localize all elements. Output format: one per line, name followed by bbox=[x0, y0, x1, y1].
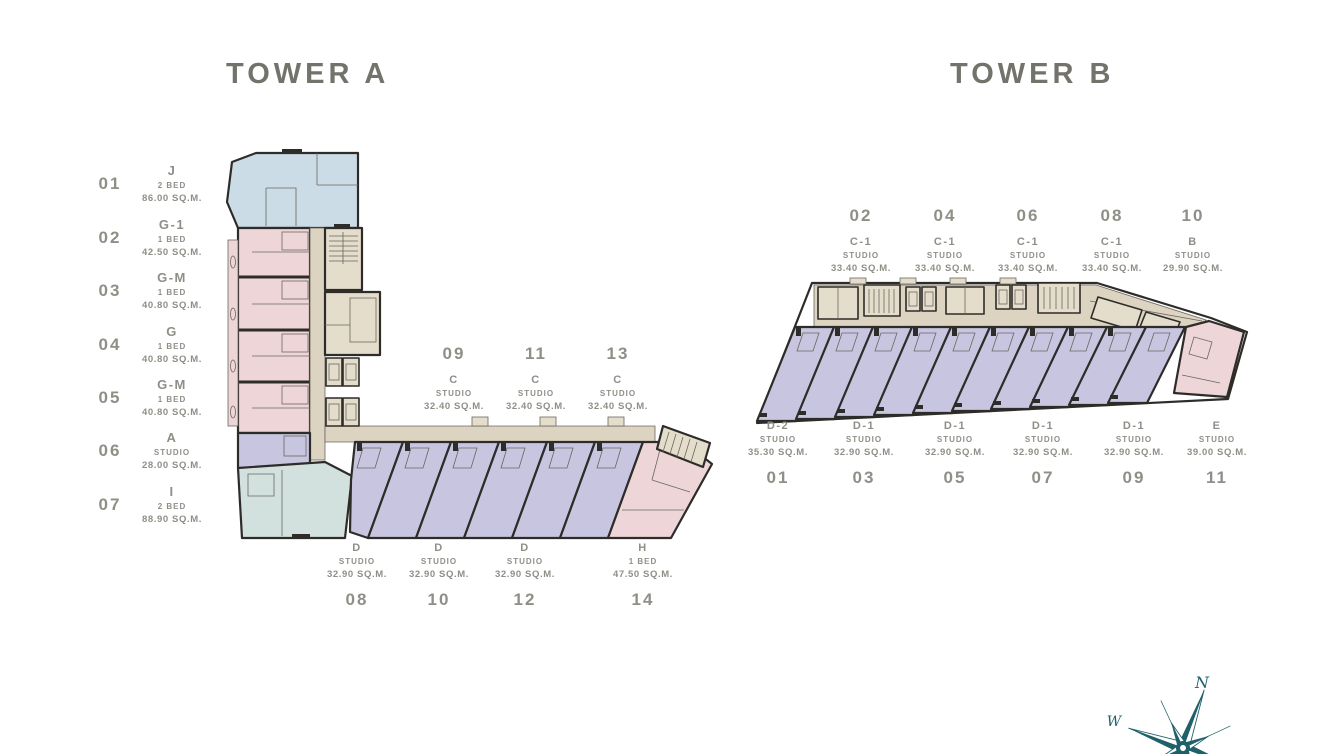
unit-type: G bbox=[132, 324, 212, 339]
unit-label-a-14: H 1 BED 47.50 SQ.M. 14 bbox=[588, 542, 698, 610]
unit-label-a-03: 03 G-M1 BED40.80 SQ.M. bbox=[88, 270, 212, 311]
unit-number: 03 bbox=[88, 281, 132, 301]
unit-type: G-M bbox=[132, 270, 212, 285]
unit-area: 42.50 SQ.M. bbox=[132, 247, 212, 258]
unit-label-a-13: 13 C STUDIO 32.40 SQ.M. bbox=[563, 344, 673, 412]
unit-type: E bbox=[1162, 420, 1272, 432]
unit-bed: 1 BED bbox=[132, 342, 212, 351]
tower-a-pink-units-shape bbox=[228, 228, 310, 433]
unit-type: G-1 bbox=[132, 217, 212, 232]
unit-number: 12 bbox=[470, 590, 580, 610]
unit-number: 02 bbox=[88, 228, 132, 248]
tower-b-floorplan bbox=[750, 275, 1260, 435]
tower-b-title: TOWER B bbox=[950, 58, 1114, 91]
unit-type: C bbox=[563, 374, 673, 386]
unit-type: D bbox=[470, 542, 580, 554]
unit-bed: STUDIO bbox=[1138, 251, 1248, 260]
compass-rose bbox=[1113, 670, 1256, 754]
compass-west-label: W bbox=[1107, 714, 1123, 730]
unit-area: 40.80 SQ.M. bbox=[132, 354, 212, 365]
unit-label-b-11: E STUDIO 39.00 SQ.M. 11 bbox=[1162, 420, 1272, 488]
unit-number: 13 bbox=[563, 344, 673, 364]
unit-type: H bbox=[588, 542, 698, 554]
unit-type: A bbox=[132, 430, 212, 445]
unit-label-a-02: 02 G-11 BED42.50 SQ.M. bbox=[88, 217, 212, 258]
unit-type: I bbox=[132, 484, 212, 499]
tower-a-d-units-shape bbox=[350, 442, 643, 538]
unit-label-a-01: 01 J2 BED86.00 SQ.M. bbox=[88, 163, 212, 204]
unit-area: 40.80 SQ.M. bbox=[132, 300, 212, 311]
unit-area: 86.00 SQ.M. bbox=[132, 193, 212, 204]
unit-label-a-07: 07 I2 BED88.90 SQ.M. bbox=[88, 484, 212, 525]
tower-a-unit-j-shape bbox=[227, 149, 358, 228]
unit-number: 05 bbox=[88, 388, 132, 408]
tower-a-title: TOWER A bbox=[226, 58, 389, 91]
unit-number: 04 bbox=[88, 335, 132, 355]
unit-label-b-10: 10 B STUDIO 29.90 SQ.M. bbox=[1138, 206, 1248, 274]
unit-number: 11 bbox=[1162, 468, 1272, 488]
unit-label-a-05: 05 G-M1 BED40.80 SQ.M. bbox=[88, 377, 212, 418]
unit-area: 32.40 SQ.M. bbox=[563, 401, 673, 412]
floorplan-page: TOWER A TOWER B bbox=[0, 0, 1342, 754]
unit-number: 07 bbox=[88, 495, 132, 515]
unit-area: 40.80 SQ.M. bbox=[132, 407, 212, 418]
unit-area: 39.00 SQ.M. bbox=[1162, 447, 1272, 458]
unit-bed: 2 BED bbox=[132, 181, 212, 190]
unit-number: 10 bbox=[1138, 206, 1248, 226]
tower-b-units-shape bbox=[757, 327, 1185, 421]
compass-north-label: N bbox=[1194, 673, 1210, 692]
unit-bed: 1 BED bbox=[132, 235, 212, 244]
unit-area: 88.90 SQ.M. bbox=[132, 514, 212, 525]
unit-bed: 1 BED bbox=[132, 395, 212, 404]
unit-bed: STUDIO bbox=[1162, 435, 1272, 444]
compass-icon: N W bbox=[1098, 662, 1268, 754]
unit-area: 28.00 SQ.M. bbox=[132, 460, 212, 471]
unit-number: 14 bbox=[588, 590, 698, 610]
unit-type: J bbox=[132, 163, 212, 178]
unit-bed: STUDIO bbox=[470, 557, 580, 566]
unit-area: 47.50 SQ.M. bbox=[588, 569, 698, 580]
unit-label-a-12: D STUDIO 32.90 SQ.M. 12 bbox=[470, 542, 580, 610]
unit-type: B bbox=[1138, 236, 1248, 248]
unit-number: 01 bbox=[88, 174, 132, 194]
unit-bed: 2 BED bbox=[132, 502, 212, 511]
unit-label-a-06: 06 ASTUDIO28.00 SQ.M. bbox=[88, 430, 212, 471]
unit-label-a-04: 04 G1 BED40.80 SQ.M. bbox=[88, 324, 212, 365]
tower-b-unit-e-shape bbox=[1174, 321, 1244, 397]
unit-number: 06 bbox=[88, 441, 132, 461]
unit-bed: 1 BED bbox=[588, 557, 698, 566]
tower-a-unit-i-shape bbox=[238, 462, 352, 538]
unit-bed: 1 BED bbox=[132, 288, 212, 297]
unit-area: 32.90 SQ.M. bbox=[470, 569, 580, 580]
unit-bed: STUDIO bbox=[132, 448, 212, 457]
unit-type: G-M bbox=[132, 377, 212, 392]
unit-bed: STUDIO bbox=[563, 389, 673, 398]
unit-area: 29.90 SQ.M. bbox=[1138, 263, 1248, 274]
